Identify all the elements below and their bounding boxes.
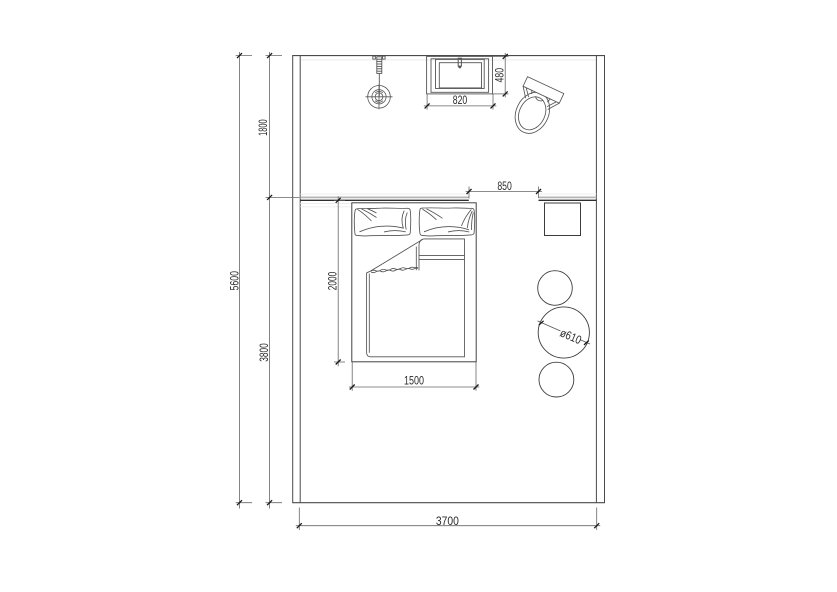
svg-text:1800: 1800 bbox=[256, 119, 270, 136]
svg-text:850: 850 bbox=[497, 179, 512, 193]
svg-text:2000: 2000 bbox=[326, 271, 340, 290]
svg-text:480: 480 bbox=[492, 68, 506, 83]
svg-text:3700: 3700 bbox=[436, 514, 459, 528]
svg-text:3800: 3800 bbox=[257, 343, 271, 362]
svg-text:820: 820 bbox=[453, 93, 468, 107]
svg-text:5600: 5600 bbox=[227, 271, 241, 291]
svg-text:1500: 1500 bbox=[404, 373, 424, 387]
